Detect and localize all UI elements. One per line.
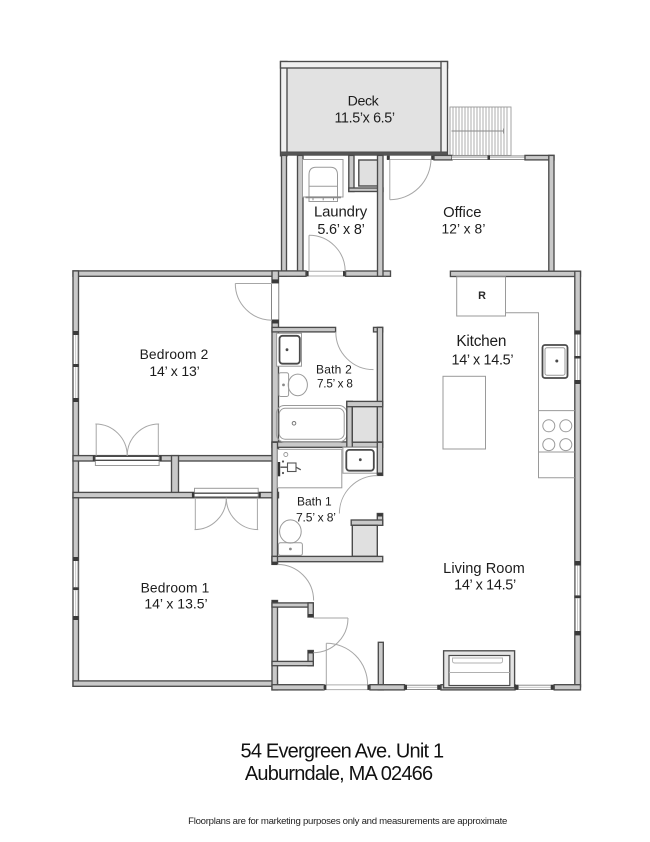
svg-text:Living Room: Living Room bbox=[443, 561, 525, 577]
svg-text:R: R bbox=[478, 290, 486, 302]
svg-text:14’ x 14.5’: 14’ x 14.5’ bbox=[452, 352, 514, 368]
svg-text:Auburndale, MA 02466: Auburndale, MA 02466 bbox=[245, 763, 433, 785]
svg-text:11.5’x 6.5’: 11.5’x 6.5’ bbox=[334, 111, 394, 127]
svg-text:Bath 1: Bath 1 bbox=[297, 494, 332, 508]
svg-text:12’ x 8’: 12’ x 8’ bbox=[441, 221, 485, 236]
svg-text:5.6’ x 8’: 5.6’ x 8’ bbox=[317, 222, 364, 238]
svg-text:Floorplans are for marketing p: Floorplans are for marketing purposes on… bbox=[188, 816, 507, 827]
svg-text:7.5’ x 8: 7.5’ x 8 bbox=[317, 378, 353, 391]
svg-text:Laundry: Laundry bbox=[314, 204, 368, 220]
svg-text:14’ x 13’: 14’ x 13’ bbox=[149, 363, 199, 379]
svg-text:Office: Office bbox=[443, 205, 481, 221]
svg-text:Bedroom 1: Bedroom 1 bbox=[141, 581, 210, 596]
svg-text:14’ x 13.5’: 14’ x 13.5’ bbox=[144, 596, 207, 612]
svg-text:Deck: Deck bbox=[348, 94, 380, 110]
svg-text:7.5’ x 8’: 7.5’ x 8’ bbox=[296, 511, 336, 525]
svg-text:Bedroom 2: Bedroom 2 bbox=[140, 347, 209, 362]
svg-text:Bath 2: Bath 2 bbox=[316, 363, 352, 377]
svg-text:Kitchen: Kitchen bbox=[456, 333, 506, 350]
svg-text:14’ x 14.5’: 14’ x 14.5’ bbox=[454, 578, 516, 594]
svg-text:54 Evergreen Ave. Unit 1: 54 Evergreen Ave. Unit 1 bbox=[241, 741, 444, 763]
